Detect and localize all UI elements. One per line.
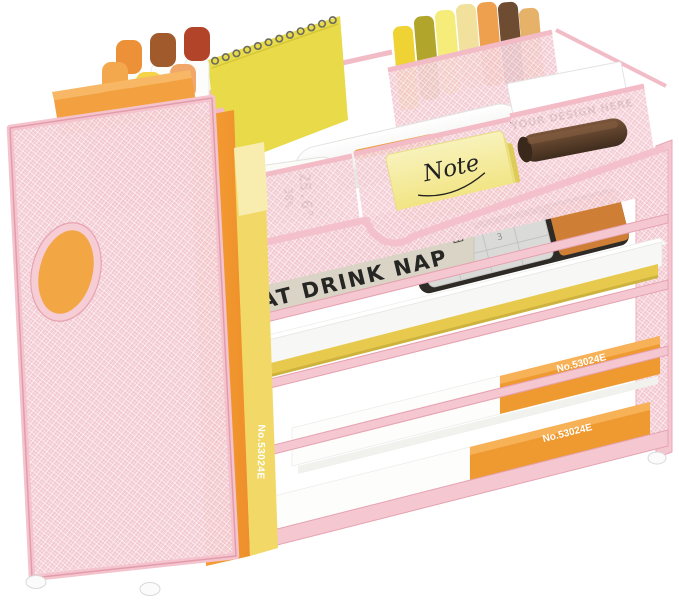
- organizer-foot: [26, 576, 46, 589]
- binder-label: No.53024E: [255, 424, 267, 479]
- magazine-file: No.53024E No.53024E: [10, 70, 278, 596]
- organizer-foot: [648, 452, 666, 464]
- organizer-foot: [140, 583, 160, 596]
- desk-organizer-illustration: Pink mesh desk organizer with letter tra…: [0, 0, 679, 600]
- magazine-file-mesh-panel: [10, 98, 236, 578]
- product-photo: Pink mesh desk organizer with letter tra…: [0, 0, 679, 600]
